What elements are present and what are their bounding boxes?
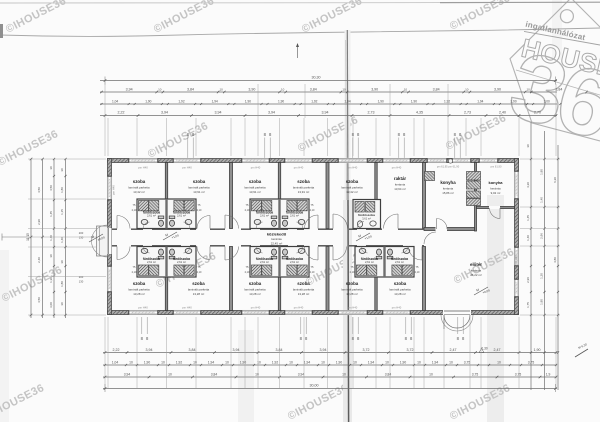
svg-text:2,22: 2,22 — [118, 111, 125, 115]
svg-text:10: 10 — [257, 360, 261, 364]
svg-text:3,94: 3,94 — [322, 111, 329, 115]
svg-text:3,00: 3,00 — [49, 302, 53, 308]
svg-text:pm H40: pm H40 — [392, 165, 402, 169]
svg-text:2,40: 2,40 — [499, 111, 506, 115]
svg-text:2,10: 2,10 — [310, 271, 315, 274]
svg-text:10: 10 — [158, 87, 162, 91]
svg-text:1,04: 1,04 — [112, 99, 118, 103]
svg-text:10: 10 — [429, 372, 433, 376]
svg-text:3,84: 3,84 — [187, 87, 194, 91]
svg-text:3,75: 3,75 — [515, 372, 522, 376]
svg-text:szoba: szoba — [346, 179, 359, 184]
svg-text:2,61 m²: 2,61 m² — [290, 214, 299, 218]
svg-text:130: 130 — [79, 280, 84, 284]
svg-text:2,70: 2,70 — [534, 111, 541, 115]
svg-text:1,40: 1,40 — [526, 235, 530, 241]
svg-text:1,94: 1,94 — [208, 360, 215, 364]
svg-text:26,22 m²: 26,22 m² — [470, 273, 481, 277]
svg-text:2,61 m²: 2,61 m² — [177, 214, 186, 218]
svg-text:2,10: 2,10 — [132, 271, 137, 274]
svg-text:2,73: 2,73 — [464, 111, 471, 115]
svg-text:22,45 m²: 22,45 m² — [271, 241, 282, 245]
svg-text:30: 30 — [60, 260, 64, 264]
svg-text:szoba: szoba — [193, 179, 206, 184]
svg-text:3,90: 3,90 — [371, 87, 378, 91]
svg-text:1,90: 1,90 — [378, 99, 384, 103]
svg-text:10: 10 — [342, 87, 346, 91]
svg-text:laminált parketta: laminált parketta — [188, 185, 210, 189]
svg-text:1,90: 1,90 — [336, 360, 343, 364]
svg-text:szoba: szoba — [346, 281, 359, 286]
svg-text:9,02 m²: 9,02 m² — [491, 191, 501, 195]
svg-text:1,90: 1,90 — [144, 360, 151, 364]
svg-text:1,80: 1,80 — [60, 281, 64, 287]
svg-text:1,45: 1,45 — [526, 215, 530, 221]
svg-text:pm H40: pm H40 — [138, 306, 148, 310]
svg-text:laminált parketta: laminált parketta — [128, 185, 150, 189]
svg-text:1,94: 1,94 — [212, 99, 218, 103]
svg-text:10: 10 — [404, 87, 408, 91]
svg-text:laminált parketta: laminált parketta — [244, 185, 266, 189]
svg-text:200: 200 — [79, 275, 84, 279]
svg-text:2,47: 2,47 — [494, 348, 501, 352]
svg-text:13,91 m²: 13,91 m² — [193, 190, 204, 194]
svg-text:3,94: 3,94 — [215, 111, 222, 115]
svg-text:4,50: 4,50 — [37, 297, 41, 303]
svg-text:2,96: 2,96 — [526, 277, 530, 283]
svg-text:1,90: 1,90 — [534, 348, 541, 352]
svg-text:2,61 m²: 2,61 m² — [395, 260, 404, 264]
svg-text:3,72: 3,72 — [363, 348, 370, 352]
svg-text:10: 10 — [161, 360, 165, 364]
svg-text:10: 10 — [168, 372, 172, 376]
svg-text:3,84: 3,84 — [189, 348, 196, 352]
svg-text:2,96: 2,96 — [540, 233, 544, 239]
svg-text:pm H40: pm H40 — [138, 165, 148, 169]
svg-text:fürdőszoba: fürdőszoba — [358, 213, 375, 217]
svg-text:1,94: 1,94 — [344, 99, 350, 103]
svg-text:1,04: 1,04 — [112, 360, 119, 364]
svg-text:30: 30 — [60, 302, 64, 306]
svg-text:1,92: 1,92 — [176, 360, 183, 364]
svg-text:2,40: 2,40 — [37, 257, 41, 263]
svg-text:1,92: 1,92 — [272, 360, 279, 364]
svg-text:pm H40: pm H40 — [251, 165, 261, 169]
svg-text:pm H40: pm H40 — [514, 255, 518, 265]
svg-text:laminált parketta: laminált parketta — [293, 287, 315, 291]
svg-text:1,40: 1,40 — [60, 237, 64, 243]
svg-text:13,91 m²: 13,91 m² — [298, 190, 309, 194]
svg-text:2,10: 2,10 — [132, 209, 137, 212]
svg-text:laminált parketta: laminált parketta — [389, 287, 411, 291]
svg-text:kerámia: kerámia — [443, 186, 454, 190]
svg-text:1,90: 1,90 — [400, 360, 407, 364]
svg-text:3,94: 3,94 — [320, 348, 327, 352]
svg-text:2,22: 2,22 — [113, 348, 120, 352]
svg-text:1,94: 1,94 — [368, 360, 375, 364]
svg-text:2,61 m²: 2,61 m² — [260, 260, 269, 264]
svg-text:10: 10 — [321, 360, 325, 364]
svg-text:10: 10 — [281, 87, 285, 91]
svg-text:1,94: 1,94 — [432, 360, 439, 364]
svg-text:1,40: 1,40 — [540, 197, 544, 203]
svg-text:6,20: 6,20 — [553, 177, 557, 183]
svg-text:pm 61,90: pm 61,90 — [491, 164, 502, 168]
svg-text:2,10: 2,10 — [245, 209, 250, 212]
svg-text:szoba: szoba — [394, 281, 407, 286]
svg-text:3,00: 3,00 — [544, 99, 550, 103]
svg-text:laminált parketta: laminált parketta — [188, 287, 210, 291]
svg-text:1,90: 1,90 — [411, 99, 417, 103]
svg-text:3,90: 3,90 — [248, 87, 255, 91]
svg-text:1,40: 1,40 — [49, 235, 53, 241]
svg-text:2,61 m²: 2,61 m² — [147, 214, 156, 218]
svg-text:30: 30 — [526, 144, 530, 148]
svg-text:laminált parketta: laminált parketta — [128, 287, 150, 291]
svg-text:1,90: 1,90 — [245, 99, 251, 103]
svg-text:1,94: 1,94 — [304, 360, 311, 364]
svg-text:2,61 m²: 2,61 m² — [260, 214, 269, 218]
svg-text:3,72: 3,72 — [407, 348, 414, 352]
svg-text:13,91 m²: 13,91 m² — [249, 190, 260, 194]
svg-text:2,47: 2,47 — [450, 348, 457, 352]
svg-text:10: 10 — [193, 360, 197, 364]
svg-text:200: 200 — [79, 231, 84, 235]
svg-text:1,80: 1,80 — [60, 187, 64, 193]
svg-text:4,50: 4,50 — [37, 187, 41, 193]
svg-text:raktár: raktár — [394, 176, 406, 181]
svg-text:2,10: 2,10 — [310, 209, 315, 212]
svg-text:1,80: 1,80 — [540, 299, 544, 305]
svg-text:szoba: szoba — [249, 179, 262, 184]
svg-text:30,30: 30,30 — [312, 76, 321, 80]
svg-text:3,94: 3,94 — [268, 111, 275, 115]
svg-text:10: 10 — [289, 360, 293, 364]
svg-text:2,10: 2,10 — [245, 271, 250, 274]
svg-text:3,61 m²: 3,61 m² — [362, 217, 371, 221]
svg-text:130: 130 — [79, 236, 84, 240]
svg-text:szoba: szoba — [133, 179, 146, 184]
svg-text:szoba: szoba — [133, 281, 146, 286]
svg-text:30: 30 — [49, 254, 53, 258]
svg-text:3,84: 3,84 — [385, 372, 392, 376]
svg-text:3,94: 3,94 — [298, 372, 305, 376]
svg-text:3,94: 3,94 — [146, 348, 153, 352]
svg-text:közlekedő: közlekedő — [267, 231, 287, 236]
svg-text:13,28 m²: 13,28 m² — [298, 292, 309, 296]
svg-text:13,28 m²: 13,28 m² — [394, 292, 405, 296]
svg-text:10: 10 — [417, 360, 421, 364]
svg-text:1,90: 1,90 — [278, 99, 284, 103]
svg-text:1,75: 1,75 — [526, 302, 530, 308]
svg-text:10: 10 — [353, 360, 357, 364]
svg-text:2,61 m²: 2,61 m² — [290, 260, 299, 264]
svg-text:2,61 m²: 2,61 m² — [147, 260, 156, 264]
svg-text:2,61 m²: 2,61 m² — [177, 260, 186, 264]
svg-text:4,50: 4,50 — [49, 185, 53, 191]
svg-text:1,9: 1,9 — [546, 372, 551, 376]
svg-text:1,30: 1,30 — [49, 277, 53, 283]
svg-text:3,94: 3,94 — [124, 372, 131, 376]
svg-text:30: 30 — [60, 168, 64, 172]
svg-text:1,45: 1,45 — [49, 211, 53, 217]
svg-text:13,28 m²: 13,28 m² — [249, 292, 260, 296]
svg-text:13,28 m²: 13,28 m² — [193, 292, 204, 296]
svg-text:1,92: 1,92 — [311, 99, 317, 103]
svg-text:konyha: konyha — [440, 180, 456, 185]
svg-text:30: 30 — [49, 166, 53, 170]
svg-text:1,92: 1,92 — [444, 99, 450, 103]
svg-text:10: 10 — [385, 360, 389, 364]
svg-text:13,42 m²: 13,42 m² — [133, 190, 144, 194]
svg-text:szoba: szoba — [249, 281, 262, 286]
svg-text:laminált parketta: laminált parketta — [293, 185, 315, 189]
svg-text:1,15: 1,15 — [60, 209, 64, 215]
svg-text:10: 10 — [449, 360, 453, 364]
svg-text:2,10: 2,10 — [415, 271, 420, 274]
svg-text:pm H40: pm H40 — [348, 306, 358, 310]
svg-text:pm H40: pm H40 — [294, 165, 304, 169]
svg-text:3,90: 3,90 — [494, 87, 501, 91]
svg-text:3,84: 3,84 — [433, 87, 440, 91]
svg-text:1,92: 1,92 — [178, 99, 184, 103]
svg-text:10: 10 — [342, 372, 346, 376]
svg-text:pm 61,95 pm 61,90: pm 61,95 pm 61,90 — [437, 164, 460, 168]
svg-text:2,10: 2,10 — [197, 271, 202, 274]
svg-text:3,84: 3,84 — [211, 372, 218, 376]
svg-text:10: 10 — [497, 360, 501, 364]
svg-text:laminált parketta: laminált parketta — [341, 287, 363, 291]
svg-text:10: 10 — [527, 87, 531, 91]
svg-text:10: 10 — [465, 87, 469, 91]
svg-text:1,80: 1,80 — [540, 169, 544, 175]
svg-text:pm H40: pm H40 — [392, 306, 402, 310]
svg-text:10: 10 — [129, 360, 133, 364]
svg-text:1,20: 1,20 — [540, 273, 544, 279]
svg-text:4,35: 4,35 — [416, 111, 423, 115]
svg-text:1,94: 1,94 — [477, 99, 483, 103]
svg-text:kerámia: kerámia — [395, 182, 406, 186]
svg-text:30,00: 30,00 — [310, 384, 319, 388]
svg-text:pm H40: pm H40 — [182, 165, 192, 169]
svg-text:1,90: 1,90 — [145, 99, 151, 103]
svg-text:szoba: szoba — [297, 281, 310, 286]
svg-text:2,61 m²: 2,61 m² — [365, 260, 374, 264]
svg-text:3,94: 3,94 — [126, 87, 133, 91]
svg-text:előtér: előtér — [470, 262, 482, 267]
svg-text:2,10: 2,10 — [350, 271, 355, 274]
svg-text:pm H40: pm H40 — [294, 306, 304, 310]
svg-text:1,90: 1,90 — [240, 360, 247, 364]
svg-text:3,75: 3,75 — [464, 360, 471, 364]
svg-text:kerámia: kerámia — [471, 268, 482, 272]
svg-text:10: 10 — [225, 360, 229, 364]
svg-text:2,10: 2,10 — [197, 209, 202, 212]
svg-text:4,20: 4,20 — [526, 182, 530, 188]
svg-text:pm H40: pm H40 — [112, 185, 116, 195]
svg-text:3,84: 3,84 — [276, 348, 283, 352]
svg-text:1,90: 1,90 — [510, 99, 516, 103]
svg-text:10: 10 — [220, 87, 224, 91]
svg-text:4,80: 4,80 — [553, 257, 557, 263]
svg-text:15,86 m²: 15,86 m² — [442, 191, 453, 195]
svg-text:pm H40: pm H40 — [348, 165, 358, 169]
svg-text:laminált parketta: laminált parketta — [244, 287, 266, 291]
svg-text:3,75: 3,75 — [472, 372, 479, 376]
svg-text:10: 10 — [255, 372, 259, 376]
svg-text:3,84: 3,84 — [555, 87, 562, 91]
svg-text:kerámia: kerámia — [271, 237, 282, 241]
svg-text:13,28 m²: 13,28 m² — [133, 292, 144, 296]
svg-text:kerámia: kerámia — [490, 186, 501, 190]
svg-text:konyha: konyha — [488, 180, 503, 185]
svg-text:13,64 m²: 13,64 m² — [394, 187, 405, 191]
svg-text:pm H40: pm H40 — [251, 306, 261, 310]
svg-text:3,94: 3,94 — [233, 348, 240, 352]
svg-text:2,90: 2,90 — [37, 219, 41, 225]
svg-text:szoba: szoba — [297, 179, 310, 184]
svg-text:laminált parketta: laminált parketta — [341, 185, 363, 189]
svg-text:3,94: 3,94 — [161, 111, 168, 115]
svg-text:13,28 m²: 13,28 m² — [346, 292, 357, 296]
svg-text:3,84: 3,84 — [310, 87, 317, 91]
svg-text:13,42 m²: 13,42 m² — [346, 190, 357, 194]
svg-text:2,73: 2,73 — [368, 111, 375, 115]
svg-text:szoba: szoba — [192, 281, 205, 286]
svg-text:pm H40: pm H40 — [182, 306, 192, 310]
